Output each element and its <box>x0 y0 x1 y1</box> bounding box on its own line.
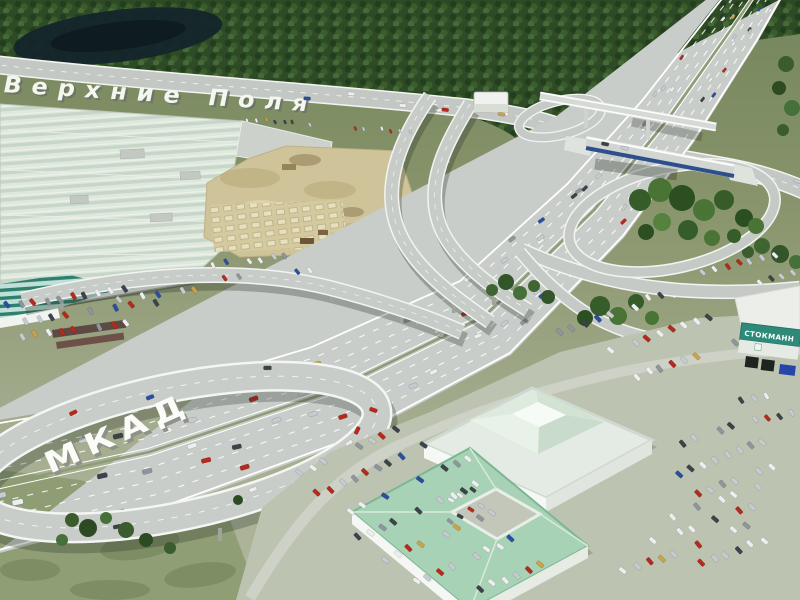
toll-plaza-structure <box>474 92 508 112</box>
store-logo <box>754 343 761 350</box>
car <box>442 108 449 112</box>
aerial-rendering-svg: Верхние Поля Верхние Поля МКАД МКАД <box>0 0 800 600</box>
loading-bay <box>745 356 759 369</box>
car <box>348 92 355 96</box>
loading-bay <box>761 359 775 372</box>
car <box>399 104 406 108</box>
blue-truck <box>779 364 796 376</box>
car <box>498 112 505 116</box>
rendering-canvas: Верхние Поля Верхние Поля МКАД МКАД <box>0 0 800 600</box>
car <box>304 97 311 101</box>
car <box>263 366 271 370</box>
